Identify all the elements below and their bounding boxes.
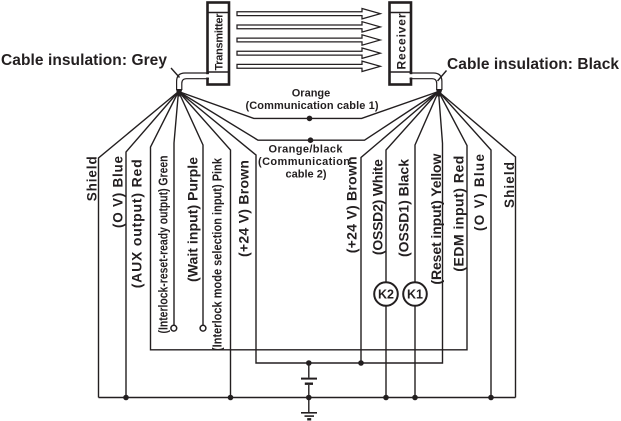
svg-text:(AUX output) Red: (AUX output) Red (129, 159, 145, 288)
svg-text:(OSSD2) White: (OSSD2) White (370, 159, 386, 255)
svg-text:Cable insulation: Black: Cable insulation: Black (447, 56, 619, 73)
svg-text:Shield: Shield (502, 162, 517, 208)
svg-text:(Communication: (Communication (258, 156, 350, 168)
svg-text:K2: K2 (378, 288, 394, 302)
svg-text:(Interlock mode selection inpu: (Interlock mode selection input) Pink (210, 157, 225, 351)
svg-text:Shield: Shield (85, 156, 100, 201)
svg-text:(EDM input) Red: (EDM input) Red (450, 156, 466, 272)
svg-text:(Interlock-reset-ready output): (Interlock-reset-ready output) Green (156, 155, 171, 333)
svg-text:(OSSD1) Black: (OSSD1) Black (395, 159, 411, 257)
svg-text:(O V) Blue: (O V) Blue (111, 156, 126, 228)
svg-text:Orange: Orange (292, 88, 331, 100)
svg-text:(+24 V) Brown: (+24 V) Brown (343, 156, 359, 253)
svg-text:cable 2): cable 2) (286, 169, 327, 181)
svg-text:(+24 V) Brown: (+24 V) Brown (235, 160, 251, 257)
svg-text:Receiver: Receiver (395, 13, 409, 69)
svg-text:(Wait input) Purple: (Wait input) Purple (184, 157, 200, 282)
svg-text:(O V) Blue: (O V) Blue (472, 154, 487, 231)
svg-text:Transmitter: Transmitter (214, 13, 226, 71)
svg-text:K1: K1 (407, 288, 423, 302)
svg-text:(Reset input) Yellow: (Reset input) Yellow (428, 153, 444, 284)
svg-text:(Communication cable 1): (Communication cable 1) (246, 100, 379, 112)
svg-text:Cable insulation: Grey: Cable insulation: Grey (1, 52, 167, 69)
svg-text:Orange/black: Orange/black (269, 144, 344, 156)
